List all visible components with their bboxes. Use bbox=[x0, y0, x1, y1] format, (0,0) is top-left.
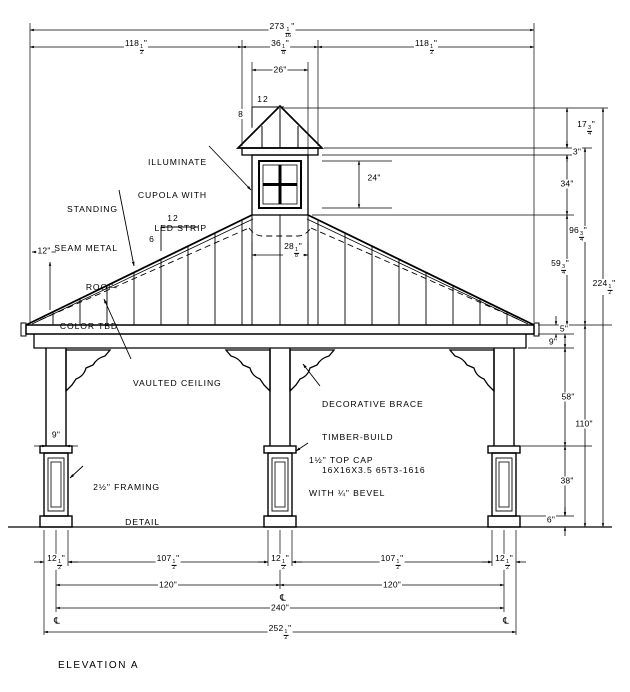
dim-overall-height: 22412" bbox=[592, 279, 617, 295]
standing-seam-roof-label: STANDING SEAM METAL ROOF- COLOR TBD bbox=[54, 177, 118, 346]
dim-post-clear: 58" bbox=[560, 393, 575, 402]
dim-post-total: 110" bbox=[574, 420, 593, 429]
cupola-slope-run: 12 bbox=[257, 94, 268, 104]
centerline-symbol-left: ℄ bbox=[54, 616, 60, 627]
dim-cupola-total: 9634" bbox=[568, 226, 588, 242]
centerline-symbol-middle: ℄ bbox=[280, 593, 286, 604]
dim-post-spacing-left: 10712" bbox=[156, 554, 181, 570]
dim-roof-overhang: 12" bbox=[36, 247, 51, 256]
dim-plinth-height: 6" bbox=[546, 516, 556, 525]
centerline-symbol-right: ℄ bbox=[503, 616, 509, 627]
cupola bbox=[238, 106, 322, 215]
dim-post-width: 9" bbox=[51, 431, 61, 440]
dim-base-width-right: 1212" bbox=[494, 554, 514, 570]
cupola-window bbox=[259, 161, 301, 208]
dim-fascia-height: 5" bbox=[559, 325, 569, 334]
cad-linework bbox=[0, 0, 630, 692]
dim-cupola-height: 34" bbox=[559, 180, 574, 189]
cupola-slope-rise: 8 bbox=[238, 109, 244, 119]
dim-bay-right: 120" bbox=[382, 581, 402, 590]
dim-cupola-interior: 2818" bbox=[283, 242, 303, 258]
dim-cupola-body-width: 26" bbox=[272, 66, 287, 75]
top-cap-label: 1½" TOP CAP WITH ¼" BEVEL bbox=[309, 433, 385, 510]
dim-window-height: 24" bbox=[366, 174, 381, 183]
illuminate-cupola-label: ILLUMINATE CUPOLA WITH LED STRIP bbox=[138, 135, 207, 245]
dim-cupola-fascia: 3" bbox=[572, 148, 582, 157]
dim-base-height: 38" bbox=[559, 477, 574, 486]
dim-base-width-middle: 1212" bbox=[270, 554, 290, 570]
elevation-drawing-sheet: 273116" 11812" 3618" 11812" 26" 12 8 12 … bbox=[0, 0, 630, 692]
dim-overall-base: 25212" bbox=[268, 624, 293, 640]
dim-beam-depth: 9" bbox=[548, 338, 558, 347]
dim-span-right: 11812" bbox=[414, 39, 438, 55]
roof-seams bbox=[53, 215, 507, 325]
post-middle bbox=[264, 348, 296, 527]
dim-span-cc: 240" bbox=[270, 604, 290, 613]
framing-detail-label: 2½" FRAMING DETAIL bbox=[84, 459, 160, 540]
dim-cupola-overall: 3618" bbox=[270, 39, 290, 55]
drawing-title: ELEVATION A bbox=[58, 660, 139, 671]
dim-overall-width-top: 273116" bbox=[268, 22, 295, 38]
dim-roof-height: 5934" bbox=[550, 259, 570, 275]
dim-cupola-roof-height: 1734" bbox=[576, 120, 596, 136]
dim-base-width-left: 1212" bbox=[46, 554, 66, 570]
dim-span-left: 11812" bbox=[124, 39, 148, 55]
dim-bay-left: 120" bbox=[158, 581, 178, 590]
post-right bbox=[488, 348, 520, 527]
vaulted-ceiling-label: VAULTED CEILING bbox=[133, 356, 222, 400]
dim-post-spacing-right: 10712" bbox=[380, 554, 405, 570]
